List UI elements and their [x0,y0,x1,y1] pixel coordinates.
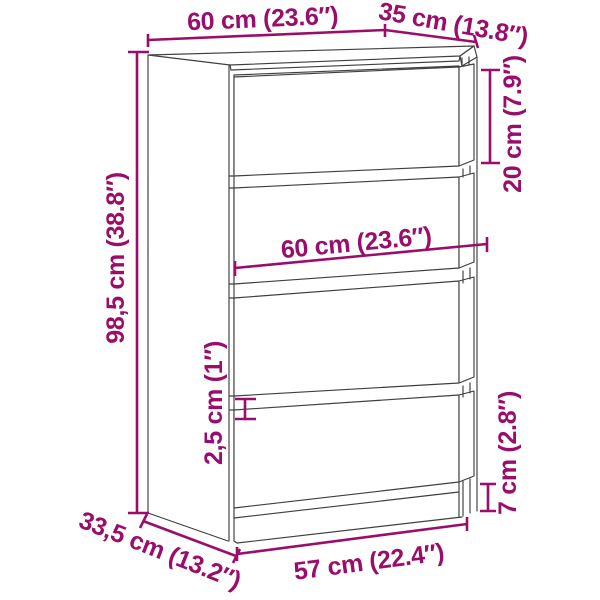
base-width-label: 57 cm (22.4″) [292,538,446,585]
overall-depth-label: 35 cm (13.8″) [376,0,530,51]
overall-height-dimension-line [128,52,149,513]
diagram-canvas: 98,5 cm (38.8″) 60 cm (23.6″) 35 cm (13.… [0,0,600,600]
top-drawer-height-dimension-line [481,70,500,163]
top-drawer-height-label: 20 cm (7.9″) [499,55,527,193]
drawer-1 [234,64,474,176]
overall-height-label: 98,5 cm (38.8″) [102,172,130,343]
drawer-gap-notches [229,176,234,410]
plinth-height-label: 7 cm (2.8″) [494,391,522,515]
product-dimension-diagram: 98,5 cm (38.8″) 60 cm (23.6″) 35 cm (13.… [0,0,600,600]
cabinet-line-art [148,46,477,543]
drawer-4 [234,391,474,508]
drawer-3 [234,277,474,396]
drawer-gap-label: 2,5 cm (1″) [200,341,228,465]
overall-width-label: 60 cm (23.6″) [187,2,339,37]
